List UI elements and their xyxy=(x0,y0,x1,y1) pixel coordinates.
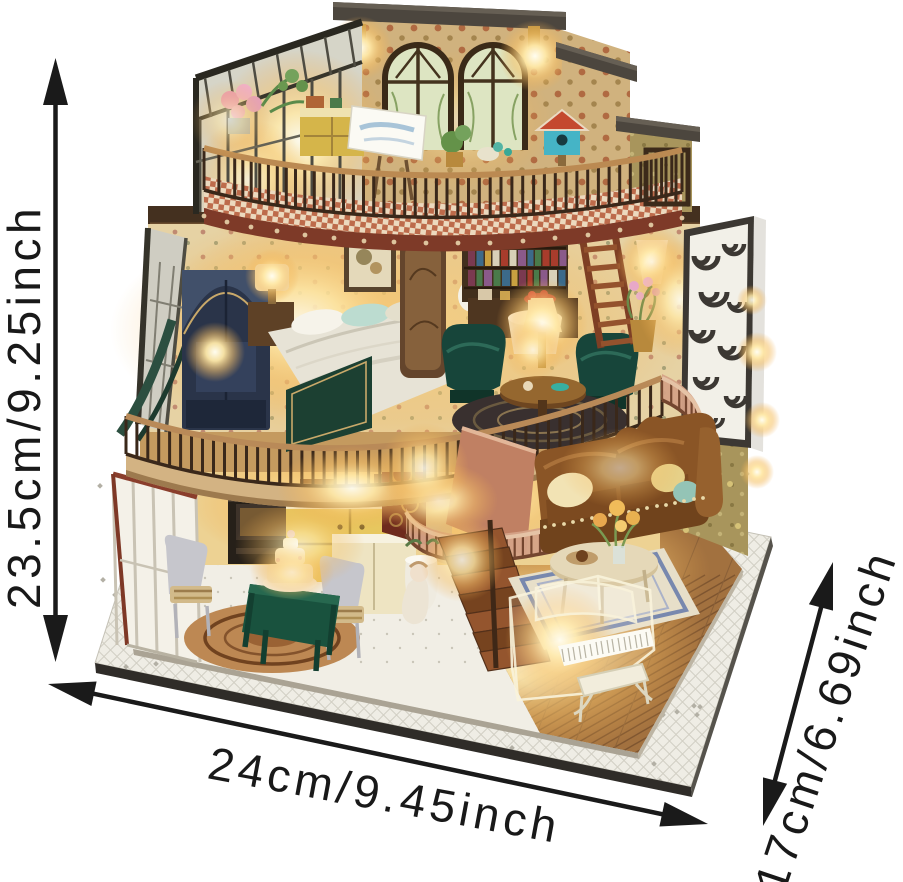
svg-text:23.5cm/9.25inch: 23.5cm/9.25inch xyxy=(0,204,50,609)
